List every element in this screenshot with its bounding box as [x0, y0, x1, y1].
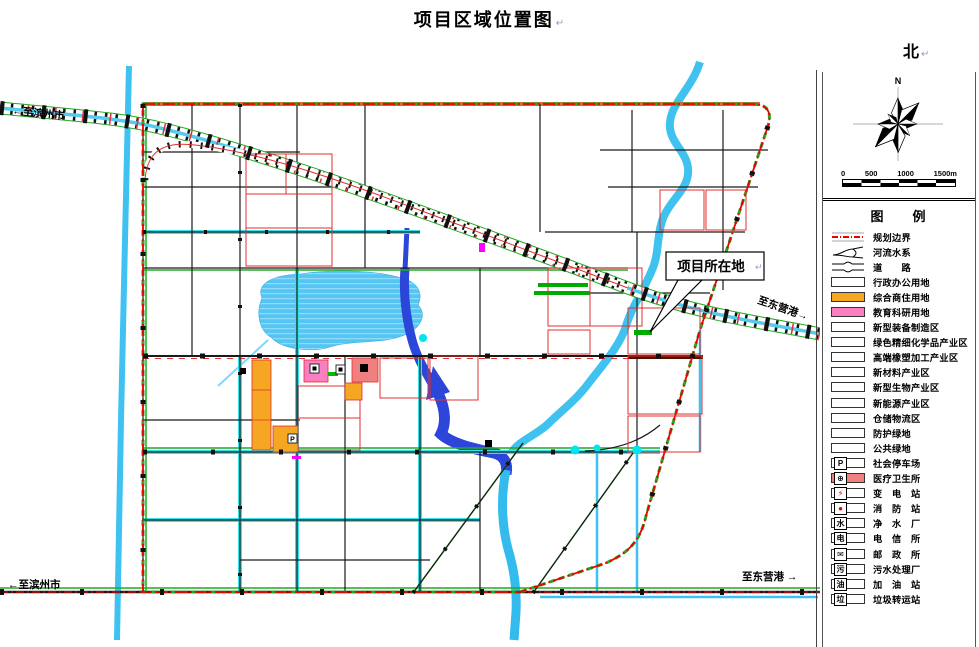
swatch-protective-green	[831, 428, 865, 438]
boundary-line-icon	[831, 230, 865, 244]
legend-item: P 社会停车场	[823, 455, 975, 470]
telecom-office-icon: 电	[831, 533, 865, 543]
compass-rose: N	[823, 72, 975, 164]
garbage-transfer-icon: 垃	[831, 594, 865, 604]
legend-item: ⚡ 变 电 站	[823, 486, 975, 501]
compass-area: N 0 500 1000 1500m	[823, 72, 975, 198]
road-label-to-binzhou-bottom: ←至滨州市	[8, 578, 61, 591]
gas-station-icon: 油	[831, 579, 865, 589]
scale-bar-ticks: 0 500 1000 1500m	[841, 169, 957, 178]
swatch-public-green	[831, 443, 865, 453]
map-frame-edge	[816, 70, 817, 647]
legend-item: 公共绿地	[823, 440, 975, 455]
swatch-equipment-mfg	[831, 322, 865, 332]
river-icon	[831, 245, 865, 259]
road-label-to-binzhou-top: ←至滨州市	[12, 104, 66, 122]
legend-item: 防护绿地	[823, 425, 975, 440]
north-label: 北↵	[903, 38, 929, 62]
river-left	[117, 66, 129, 640]
legend-item: 河流水系	[823, 244, 975, 259]
svg-text:↵: ↵	[755, 262, 763, 272]
legend: 图 例 规划边界 河流水系 道 路	[823, 198, 975, 606]
road-label-to-dongying-bottom: 至东营港 →	[742, 570, 797, 583]
swatch-new-materials	[831, 367, 865, 377]
compass-n-label: N	[895, 76, 902, 86]
svg-text:项目所在地: 项目所在地	[677, 258, 745, 274]
legend-item: 绿色精细化学品产业区	[823, 335, 975, 350]
swatch-admin-office	[831, 277, 865, 287]
legend-item: 垃 垃圾转运站	[823, 591, 975, 606]
medical-clinic-icon: ⊕	[831, 473, 865, 483]
legend-item: 水 净 水 厂	[823, 516, 975, 531]
legend-item: 油 加 油 站	[823, 576, 975, 591]
swatch-green-chemicals	[831, 337, 865, 347]
legend-title: 图 例	[823, 204, 975, 229]
swatch-new-energy	[831, 398, 865, 408]
substation-lightning-icon: ⚡	[831, 488, 865, 498]
legend-item: ✉ 邮 政 所	[823, 546, 975, 561]
map-svg: P 项目所在地 ↵ ←至滨州市 ←至滨州市 至东营港 → 至东营港→	[0, 0, 820, 647]
swatch-education-research	[831, 307, 865, 317]
swatch-rubber-plastic	[831, 352, 865, 362]
legend-item: 新能源产业区	[823, 395, 975, 410]
legend-item: 仓储物流区	[823, 410, 975, 425]
legend-item: 污 污水处理厂	[823, 561, 975, 576]
page: 项目区域位置图↵ 北↵	[0, 0, 979, 647]
legend-item: 高端橡塑加工产业区	[823, 350, 975, 365]
swatch-bio-industry	[831, 382, 865, 392]
legend-item: 规划边界	[823, 229, 975, 244]
parking-lot-icon: P	[831, 458, 865, 468]
legend-item: 新材料产业区	[823, 365, 975, 380]
scale-bar	[842, 179, 956, 187]
legend-item: 电 电 信 所	[823, 531, 975, 546]
sewage-plant-icon: 污	[831, 564, 865, 574]
legend-item: 新型生物产业区	[823, 380, 975, 395]
legend-item: 道 路	[823, 259, 975, 274]
legend-item: 综合商住用地	[823, 289, 975, 304]
road-icon	[831, 260, 865, 274]
legend-item: 教育科研用地	[823, 304, 975, 319]
legend-item: 行政办公用地	[823, 274, 975, 289]
parcel-icon-box	[336, 365, 345, 374]
legend-item: 新型装备制造区	[823, 320, 975, 335]
post-office-icon: ✉	[831, 549, 865, 559]
legend-item: ● 消 防 站	[823, 501, 975, 516]
medical-parcel	[352, 358, 378, 382]
legend-item: ⊕ 医疗卫生所	[823, 471, 975, 486]
side-panel: N 0 500 1000 1500m	[822, 72, 976, 647]
swatch-warehouse-logistics	[831, 413, 865, 423]
map-area: P 项目所在地 ↵ ←至滨州市 ←至滨州市 至东营港 → 至东营港→	[0, 0, 820, 647]
fire-station-icon: ●	[831, 503, 865, 513]
education-parcel	[304, 360, 328, 382]
parking-icon: P	[290, 437, 295, 444]
water-plant-icon: 水	[831, 518, 865, 528]
swatch-commercial-residential	[831, 292, 865, 302]
